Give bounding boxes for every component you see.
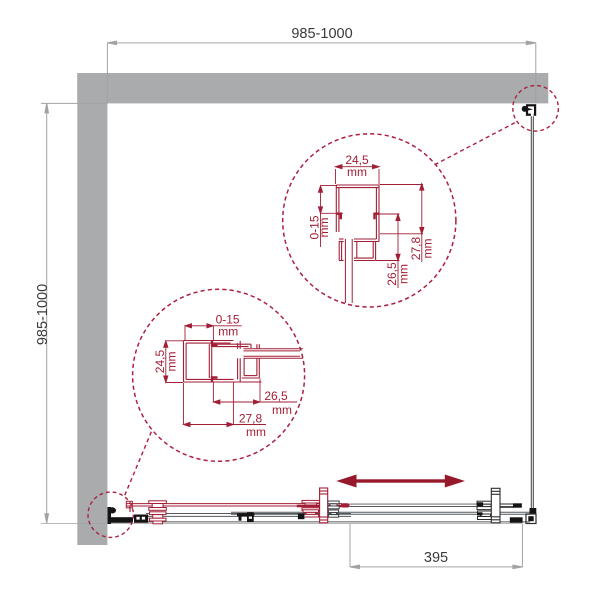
svg-text:mm: mm <box>218 324 238 338</box>
svg-text:mm: mm <box>317 218 331 238</box>
svg-text:mm: mm <box>164 352 178 372</box>
svg-text:mm: mm <box>272 403 292 417</box>
svg-text:mm: mm <box>420 239 434 259</box>
svg-text:mm: mm <box>246 425 266 439</box>
svg-text:395: 395 <box>424 550 448 566</box>
svg-text:26,5: 26,5 <box>264 389 288 403</box>
svg-text:985-1000: 985-1000 <box>291 26 352 42</box>
svg-text:mm: mm <box>397 264 411 284</box>
svg-text:mm: mm <box>347 165 367 179</box>
svg-text:985-1000: 985-1000 <box>35 284 51 345</box>
svg-text:27,8: 27,8 <box>239 411 263 425</box>
